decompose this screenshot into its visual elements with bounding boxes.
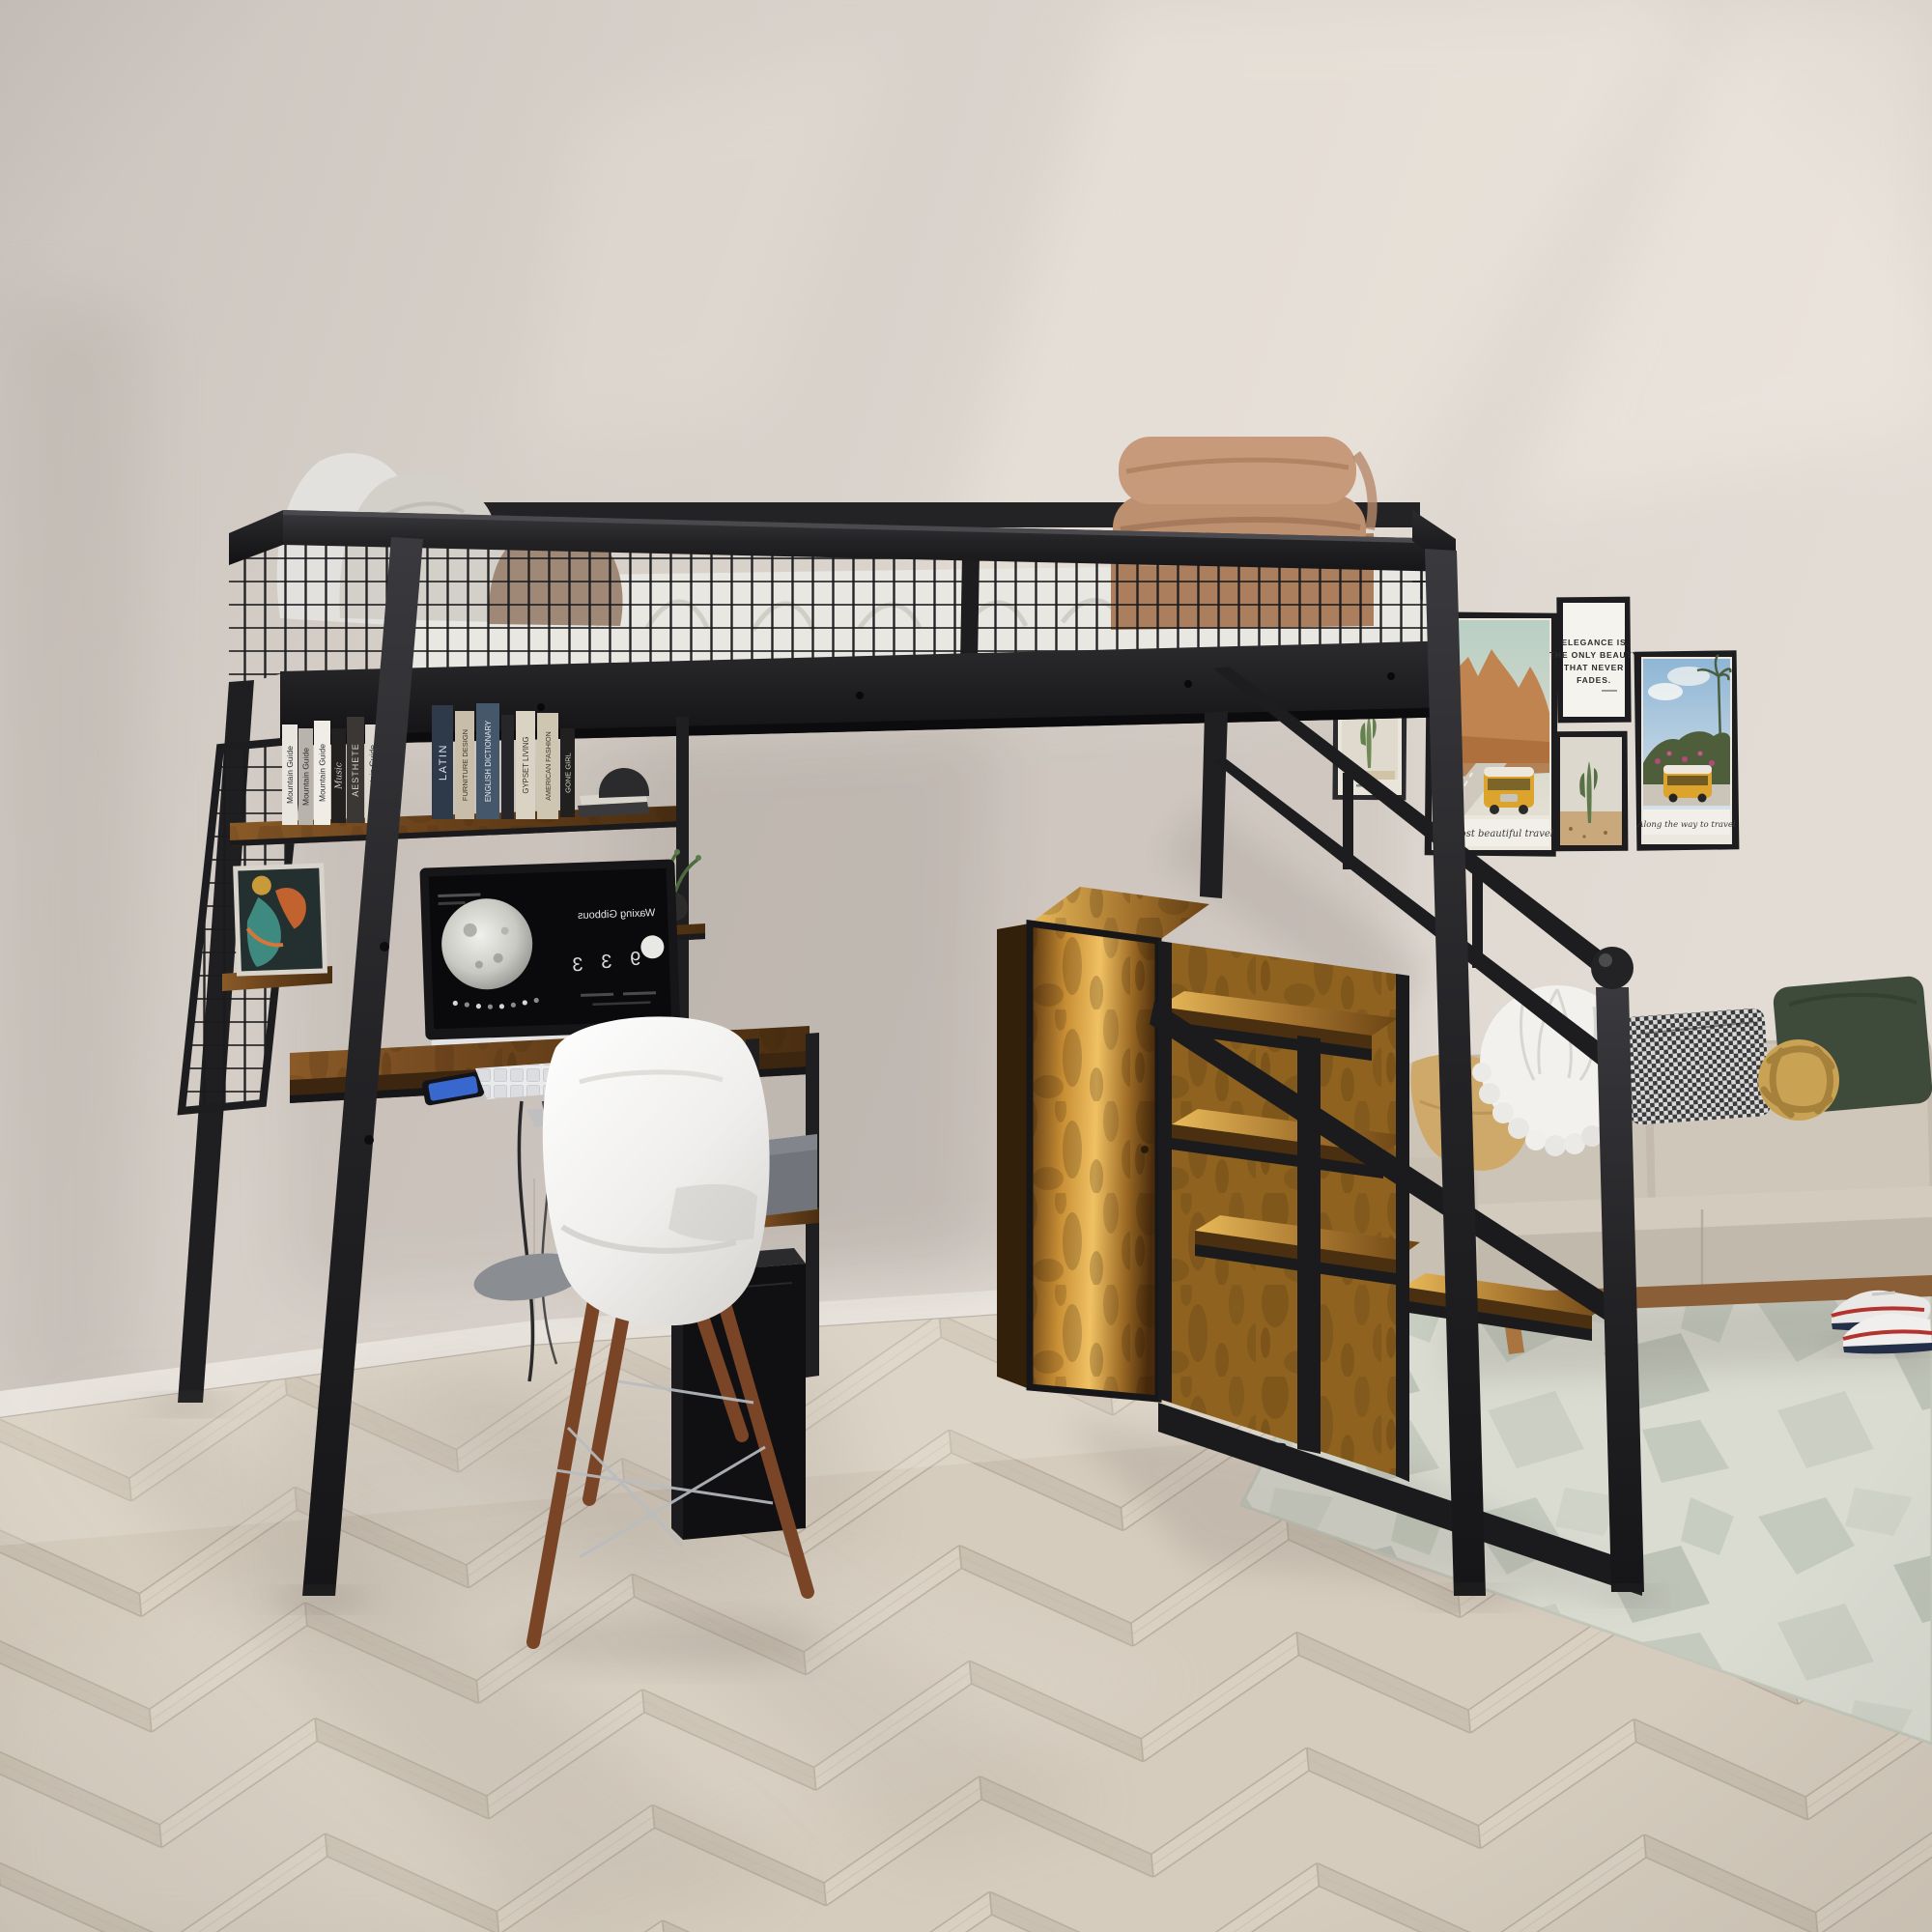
- vignette: [0, 0, 1932, 1932]
- scene-canvas: The most beautiful travel ELEGANCE IS TH…: [0, 0, 1932, 1932]
- room-photo: The most beautiful travel ELEGANCE IS TH…: [0, 0, 1932, 1932]
